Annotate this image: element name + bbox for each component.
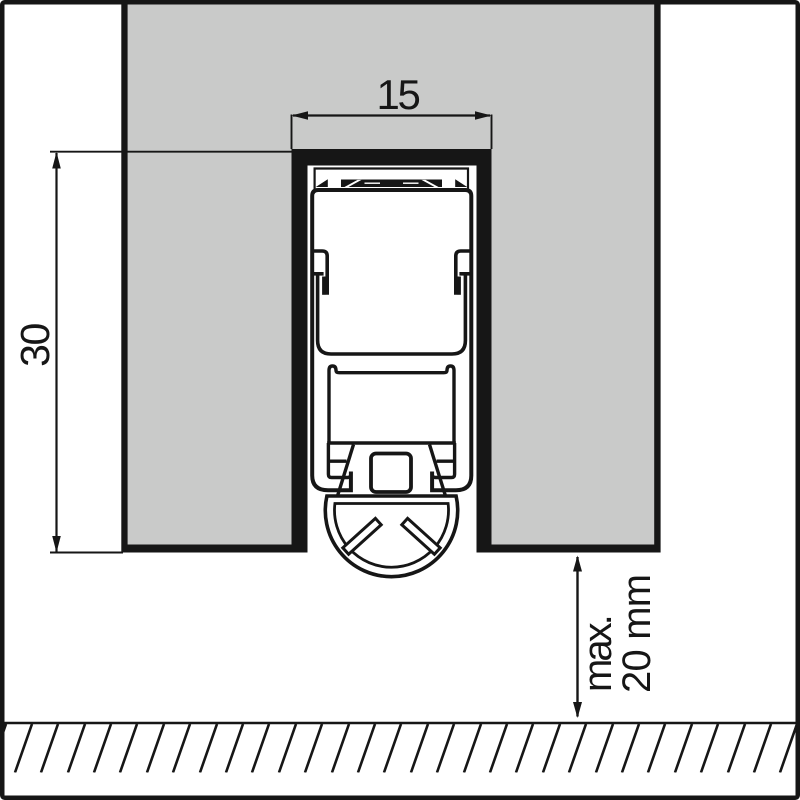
svg-text:20 mm: 20 mm bbox=[615, 575, 659, 693]
svg-text:30: 30 bbox=[12, 324, 58, 367]
svg-text:15: 15 bbox=[377, 71, 420, 118]
svg-text:max.: max. bbox=[576, 617, 620, 692]
